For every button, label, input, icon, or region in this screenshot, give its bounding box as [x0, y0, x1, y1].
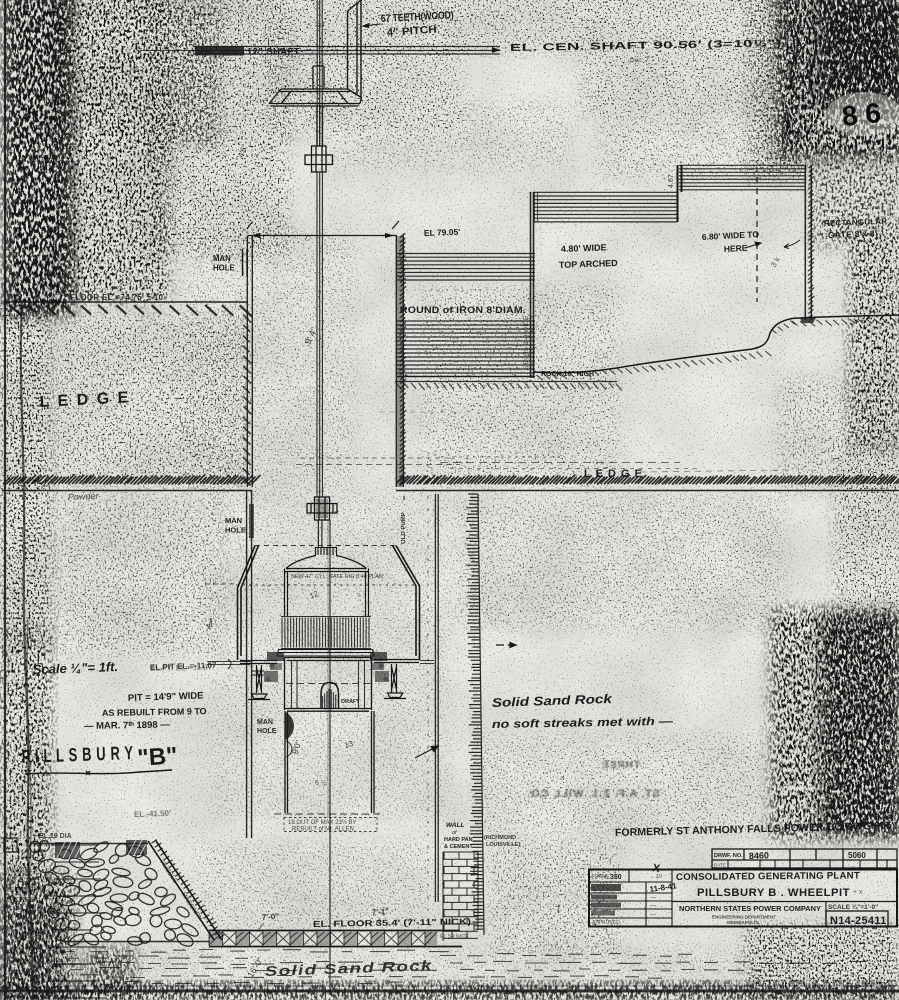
svg-text:8 6: 8 6: [840, 97, 882, 132]
